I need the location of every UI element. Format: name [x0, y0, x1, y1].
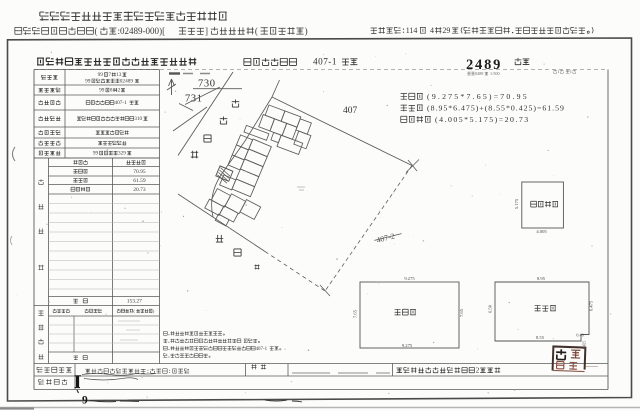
svg-text:730: 730: [198, 79, 216, 90]
svg-text:153.27: 153.27: [127, 299, 142, 305]
svg-text:8.95: 8.95: [537, 276, 546, 281]
svg-text:70.95: 70.95: [133, 169, 146, 175]
svg-text:4.005: 4.005: [536, 229, 547, 234]
svg-text:20.73: 20.73: [133, 187, 146, 193]
svg-text:8: 8: [110, 88, 113, 94]
svg-text:29: 29: [442, 26, 450, 35]
svg-text:1: 1: [570, 69, 572, 74]
svg-text:7.65: 7.65: [353, 309, 358, 318]
svg-text:2: 2: [118, 88, 121, 94]
svg-text:1:500: 1:500: [490, 71, 500, 76]
svg-text::02489-000)[: :02489-000)[: [118, 26, 166, 36]
svg-text:407-1: 407-1: [313, 57, 337, 67]
svg-text:99: 99: [93, 151, 99, 157]
svg-text:0.425: 0.425: [583, 341, 587, 350]
svg-text:(9.275*7.65)=70.95: (9.275*7.65)=70.95: [427, 92, 529, 101]
svg-text:]: ]: [205, 26, 208, 36]
svg-text:407-1: 407-1: [256, 347, 268, 352]
svg-text:(8.95*6.475)+(8.55*0.425)=61.5: (8.95*6.475)+(8.55*0.425)=61.59: [427, 104, 565, 113]
svg-text:7: 7: [108, 72, 111, 78]
svg-text:407: 407: [343, 106, 358, 116]
svg-text:(4.005*5.175)=20.73: (4.005*5.175)=20.73: [435, 115, 530, 124]
svg-text:9.275: 9.275: [402, 343, 413, 348]
svg-text:9.275: 9.275: [404, 276, 415, 281]
svg-text:13: 13: [116, 72, 122, 78]
svg-text:99: 99: [85, 79, 91, 85]
svg-text:2: 2: [476, 367, 480, 374]
svg-text:7.65: 7.65: [459, 308, 464, 317]
svg-text:407-1: 407-1: [114, 100, 127, 106]
svg-text:5.175: 5.175: [514, 198, 519, 209]
svg-text:9: 9: [82, 395, 88, 407]
svg-text:1: 1: [557, 69, 559, 74]
svg-text:0489: 0489: [475, 71, 483, 76]
svg-text:0.40: 0.40: [576, 333, 583, 338]
svg-text:(: (: [95, 26, 98, 36]
svg-text:4: 4: [430, 26, 434, 35]
svg-text:8.55: 8.55: [536, 335, 545, 340]
svg-text:99: 99: [98, 72, 104, 78]
svg-text:329: 329: [118, 151, 126, 157]
svg-text:310: 310: [134, 116, 142, 122]
svg-text:(: (: [255, 26, 258, 36]
svg-text:02489: 02489: [120, 79, 134, 85]
svg-text:61.59: 61.59: [133, 178, 146, 184]
svg-text:99: 99: [99, 88, 105, 94]
svg-text:): ): [305, 26, 308, 36]
svg-text:6.475: 6.475: [589, 300, 594, 311]
svg-text:114: 114: [406, 26, 418, 35]
svg-text:6.50: 6.50: [488, 304, 493, 313]
